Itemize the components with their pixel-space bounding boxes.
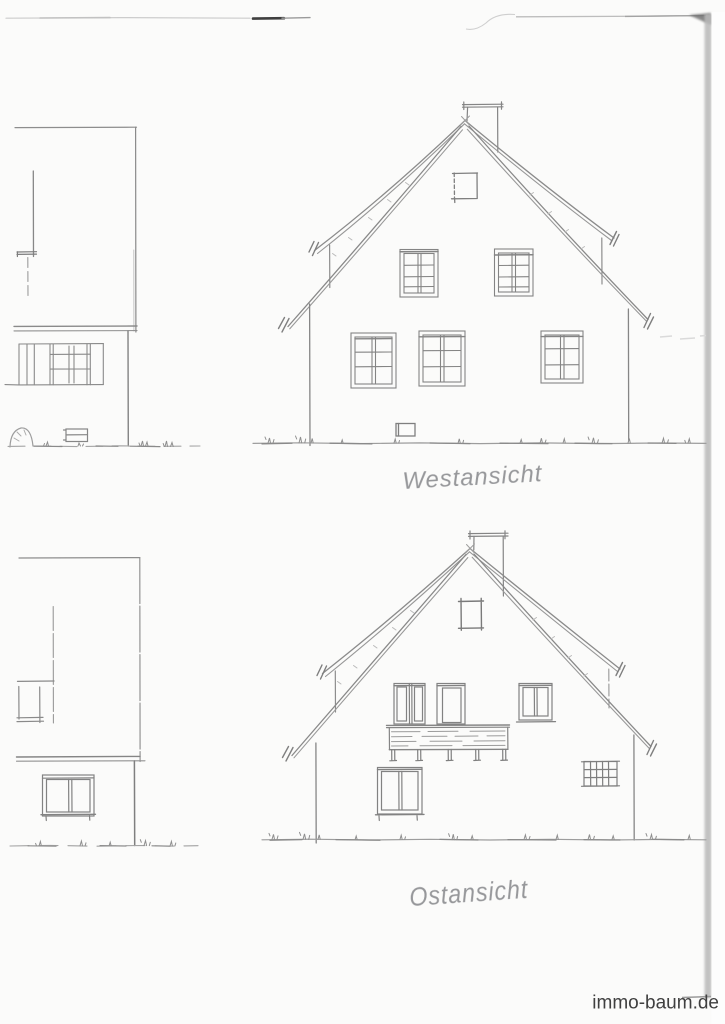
- svg-text:immo-baum.de: immo-baum.de: [592, 993, 719, 1014]
